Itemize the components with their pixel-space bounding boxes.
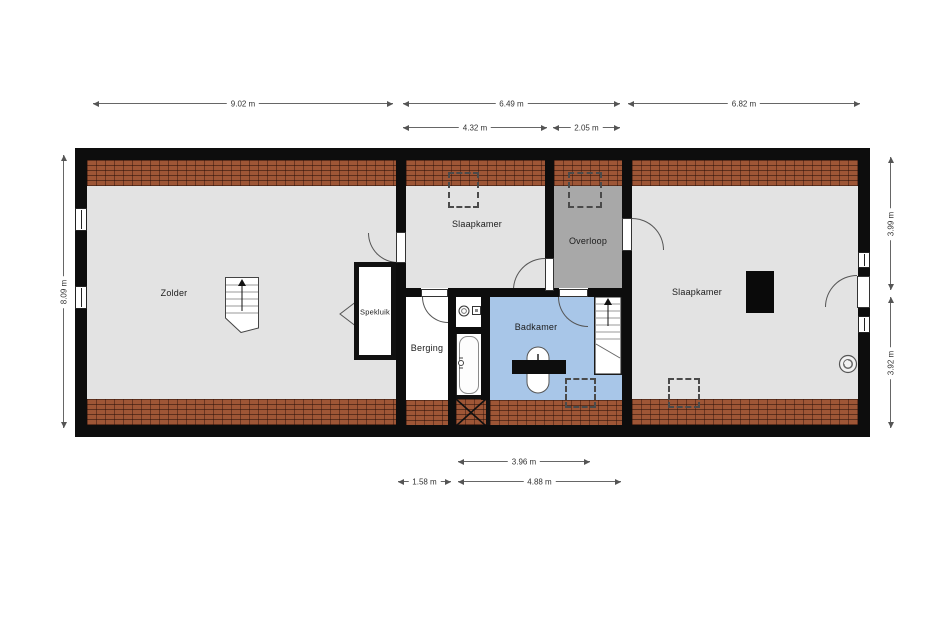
wall: [448, 288, 559, 297]
door-leaf: [545, 258, 554, 291]
room-label-badkamer: Badkamer: [515, 322, 558, 332]
stairs-icon: [594, 296, 622, 375]
dimension-width-middle: 6.49 m: [403, 103, 620, 104]
wall: [396, 148, 406, 233]
roof-hatch-zolder-bottom: [87, 399, 396, 425]
wall: [448, 288, 456, 430]
dimension-label: 3.92 m: [886, 346, 895, 378]
dimension-width-badkamer-stairs: 4.88 m: [458, 481, 621, 482]
room-label-overloop: Overloop: [569, 236, 607, 246]
dimension-label: 9.02 m: [227, 99, 259, 108]
ventilation-icon: [838, 354, 858, 374]
window-icon: [858, 252, 870, 268]
toilet-icon: [457, 302, 481, 320]
dimension-label: 3.99 m: [886, 207, 895, 239]
dimension-width-slaapkamer-mid: 4.32 m: [403, 127, 547, 128]
wall: [75, 425, 870, 437]
wall: [396, 288, 421, 297]
dimension-label: 8.09 m: [59, 275, 68, 307]
dimension-height-right-top: 3.99 m: [890, 157, 891, 290]
roof-hatch-berging-bottom: [406, 400, 448, 425]
dimension-width-zolder: 9.02 m: [93, 103, 393, 104]
window-icon: [858, 316, 870, 333]
roof-hatch-right-bottom: [632, 399, 858, 425]
wall: [622, 148, 632, 218]
wall: [588, 288, 632, 297]
dimension-label: 2.05 m: [570, 123, 602, 132]
bathtub-icon: [456, 333, 482, 397]
dimension-width-berging: 1.58 m: [398, 481, 451, 482]
slaapkamer-right-floor: [632, 160, 858, 425]
chimney-block: [746, 271, 774, 313]
stairs-icon: [225, 277, 259, 333]
room-label-zolder: Zolder: [161, 288, 188, 298]
dimension-width-badkamer: 3.96 m: [458, 461, 590, 462]
door-leaf: [396, 232, 406, 263]
dormer-outline: [565, 378, 596, 408]
door-leaf: [857, 276, 870, 308]
room-label-berging: Berging: [411, 343, 443, 353]
washbasin-icon: [512, 346, 566, 394]
dormer-outline: [448, 172, 479, 208]
dimension-height-right-bottom: 3.92 m: [890, 297, 891, 428]
window-icon: [75, 208, 87, 231]
wall: [448, 327, 483, 334]
dimension-width-right: 6.82 m: [628, 103, 860, 104]
wall: [75, 148, 870, 160]
room-label-spekluik: Spekluik: [360, 308, 390, 317]
door-leaf: [421, 289, 448, 297]
dimension-label: 4.32 m: [459, 123, 491, 132]
door-leaf: [559, 289, 588, 297]
dimension-label: 1.58 m: [408, 477, 440, 486]
room-label-slaapkamer-right: Slaapkamer: [672, 287, 722, 297]
wall: [481, 288, 490, 400]
dimension-label: 3.96 m: [508, 457, 540, 466]
dimension-label: 6.49 m: [495, 99, 527, 108]
floor-plan: Zolder Slaapkamer Overloop Spekluik Berg…: [0, 0, 925, 617]
dimension-label: 6.82 m: [728, 99, 760, 108]
window-icon: [75, 286, 87, 309]
dormer-outline: [568, 172, 602, 208]
door-leaf: [622, 218, 632, 251]
room-label-slaapkamer-mid: Slaapkamer: [452, 219, 502, 229]
dimension-label: 4.88 m: [523, 477, 555, 486]
dimension-width-overloop: 2.05 m: [553, 127, 620, 128]
roof-hatch-right-top: [632, 160, 858, 186]
roof-hatch-zolder-top: [87, 160, 396, 186]
dormer-outline: [668, 378, 700, 408]
wall: [545, 148, 554, 258]
wall: [622, 250, 632, 437]
roof-hatch-badkamer-bottom: [490, 400, 622, 425]
dimension-height-left: 8.09 m: [63, 155, 64, 428]
